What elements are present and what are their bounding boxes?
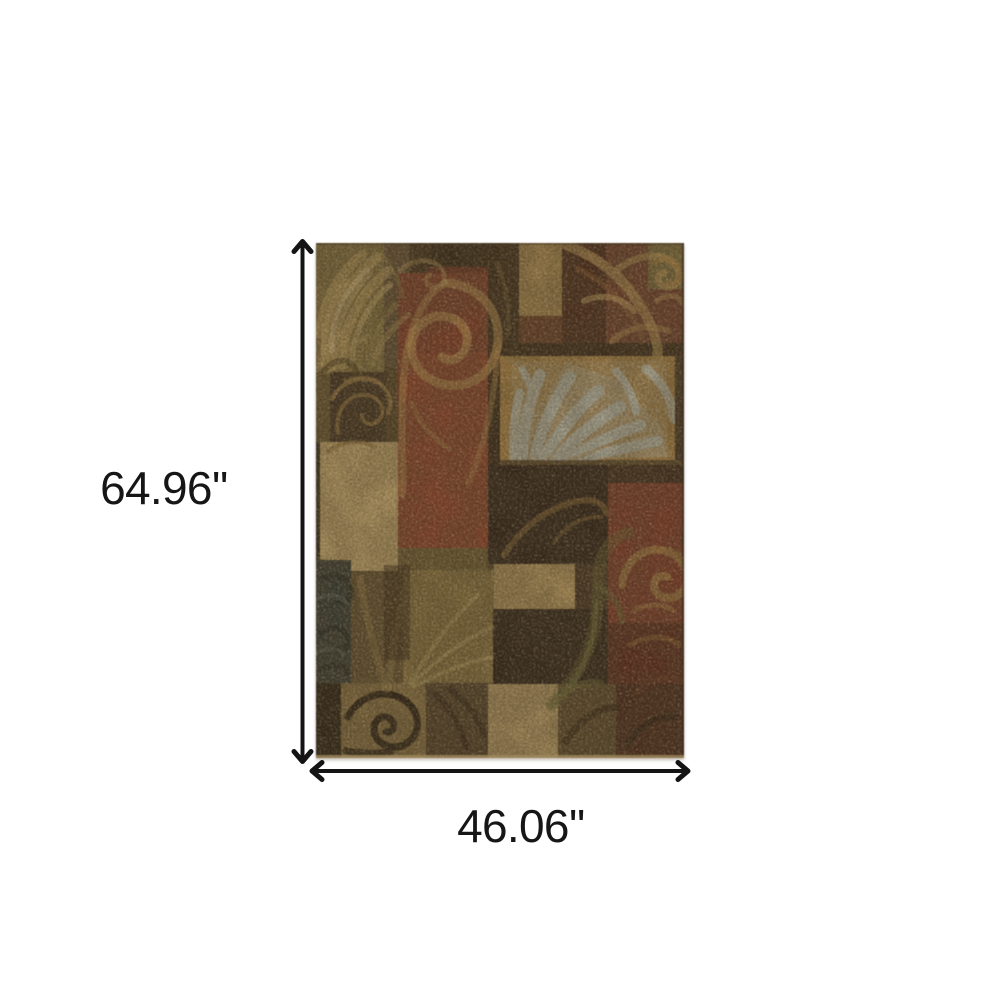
svg-text:46.06'': 46.06'' bbox=[457, 800, 585, 852]
svg-text:64.96'': 64.96'' bbox=[100, 462, 228, 514]
